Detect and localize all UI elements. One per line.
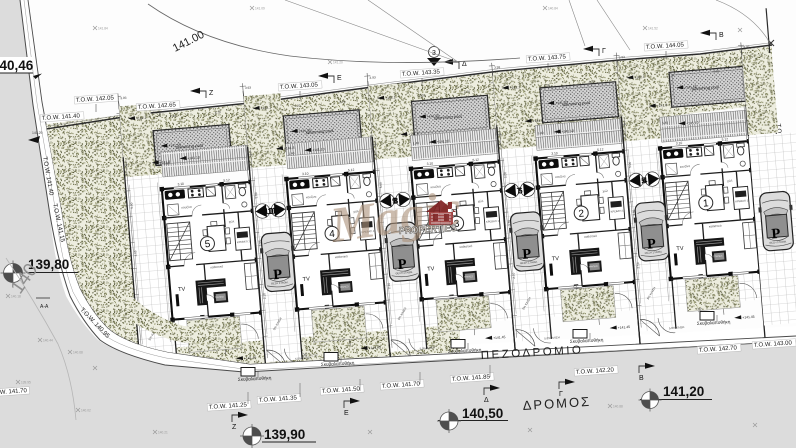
svg-text:3.10: 3.10 <box>302 172 309 177</box>
svg-text:Z: Z <box>232 424 237 431</box>
svg-text:2.20: 2.20 <box>170 114 177 119</box>
svg-text:139,90: 139,90 <box>264 427 305 442</box>
svg-text:140.88: 140.88 <box>613 405 623 409</box>
svg-text:140.68: 140.68 <box>73 351 83 355</box>
svg-text:χώλ: χώλ <box>229 219 235 223</box>
svg-text:140.44: 140.44 <box>43 339 53 343</box>
svg-text:4.70: 4.70 <box>588 79 595 84</box>
svg-text:1.40: 1.40 <box>413 141 420 146</box>
svg-text:2.10: 2.10 <box>387 282 392 289</box>
svg-text:5.12: 5.12 <box>348 168 355 173</box>
svg-text:Γ: Γ <box>602 48 606 55</box>
svg-text:3.93: 3.93 <box>369 75 376 80</box>
svg-text:140.21: 140.21 <box>158 431 168 435</box>
svg-text:3.10: 3.10 <box>676 141 683 146</box>
svg-text:5.12: 5.12 <box>597 147 604 152</box>
svg-text:2.10: 2.10 <box>636 262 641 269</box>
svg-text:Δ: Δ <box>462 61 467 68</box>
svg-text:1.40: 1.40 <box>662 121 669 126</box>
svg-text:5.00: 5.00 <box>379 182 384 189</box>
svg-text:4.70: 4.70 <box>339 100 346 105</box>
svg-text:TV: TV <box>676 246 684 253</box>
svg-text:Z: Z <box>209 90 214 97</box>
svg-text:141.02: 141.02 <box>308 354 318 358</box>
svg-text:κουζίνα: κουζίνα <box>181 205 192 210</box>
svg-text:3.10: 3.10 <box>177 182 184 187</box>
svg-text:2.20: 2.20 <box>294 104 301 109</box>
svg-text:TV: TV <box>178 287 186 294</box>
svg-text:κουζίνα: κουζίνα <box>680 164 691 169</box>
svg-text:2.10: 2.10 <box>511 272 516 279</box>
svg-text:4.70: 4.70 <box>713 69 720 74</box>
svg-text:3.10: 3.10 <box>427 161 434 166</box>
svg-text:5.00: 5.00 <box>254 192 259 199</box>
svg-text:140.84: 140.84 <box>548 7 558 11</box>
svg-text:5.00: 5.00 <box>503 172 508 179</box>
svg-text:141,20: 141,20 <box>663 384 704 399</box>
svg-text:3.65: 3.65 <box>133 250 138 257</box>
svg-text:4.70: 4.70 <box>464 90 471 95</box>
svg-text:TV: TV <box>302 276 310 283</box>
svg-text:4.70: 4.70 <box>215 110 222 115</box>
svg-text:5.12: 5.12 <box>472 158 479 163</box>
svg-text:2.20: 2.20 <box>544 83 551 88</box>
svg-text:3.93: 3.93 <box>618 55 625 60</box>
svg-text:5.12: 5.12 <box>722 137 729 142</box>
svg-text:1.40: 1.40 <box>537 131 544 136</box>
svg-text:140.02: 140.02 <box>81 409 91 413</box>
svg-text:2.20: 2.20 <box>419 93 426 98</box>
svg-text:χώλ: χώλ <box>478 199 484 203</box>
svg-text:Γ: Γ <box>559 391 563 398</box>
svg-text:139.95: 139.95 <box>21 381 31 385</box>
svg-text:10: 10 <box>264 206 275 217</box>
svg-text:TV: TV <box>427 266 435 273</box>
svg-text:141.84: 141.84 <box>98 27 108 31</box>
svg-text:E: E <box>344 410 349 417</box>
svg-text:A-A: A-A <box>40 304 49 310</box>
svg-text:141.52: 141.52 <box>648 27 658 31</box>
svg-text:3.93: 3.93 <box>494 65 501 70</box>
svg-text:2.10: 2.10 <box>262 293 267 300</box>
svg-text:5.12: 5.12 <box>223 178 230 183</box>
svg-text:TV: TV <box>552 256 560 263</box>
svg-text:1.40: 1.40 <box>164 161 171 166</box>
svg-text:1.40: 1.40 <box>288 151 295 156</box>
svg-text:χώλ: χώλ <box>602 189 608 193</box>
svg-text:Δ: Δ <box>484 397 489 404</box>
svg-text:κουζίνα: κουζίνα <box>306 195 317 200</box>
svg-text:5.00: 5.00 <box>129 202 134 209</box>
svg-text:κουζίνα: κουζίνα <box>555 174 566 179</box>
svg-text:B: B <box>639 375 644 382</box>
svg-text:E: E <box>337 75 342 82</box>
svg-text:140.29: 140.29 <box>32 131 42 135</box>
svg-text:141.09: 141.09 <box>255 7 265 11</box>
svg-text:3.93: 3.93 <box>743 45 750 50</box>
svg-text:χώλ: χώλ <box>727 179 733 183</box>
svg-text:3.10: 3.10 <box>551 151 558 156</box>
svg-text:B: B <box>719 32 724 39</box>
svg-text:5.00: 5.00 <box>628 161 633 168</box>
svg-text:141.20: 141.20 <box>333 61 343 65</box>
svg-text:3.93: 3.93 <box>120 96 127 101</box>
svg-text:2.20: 2.20 <box>668 73 675 78</box>
svg-text:3.93: 3.93 <box>245 86 252 91</box>
svg-text:140,50: 140,50 <box>462 406 503 421</box>
svg-text:140,46: 140,46 <box>0 58 34 73</box>
